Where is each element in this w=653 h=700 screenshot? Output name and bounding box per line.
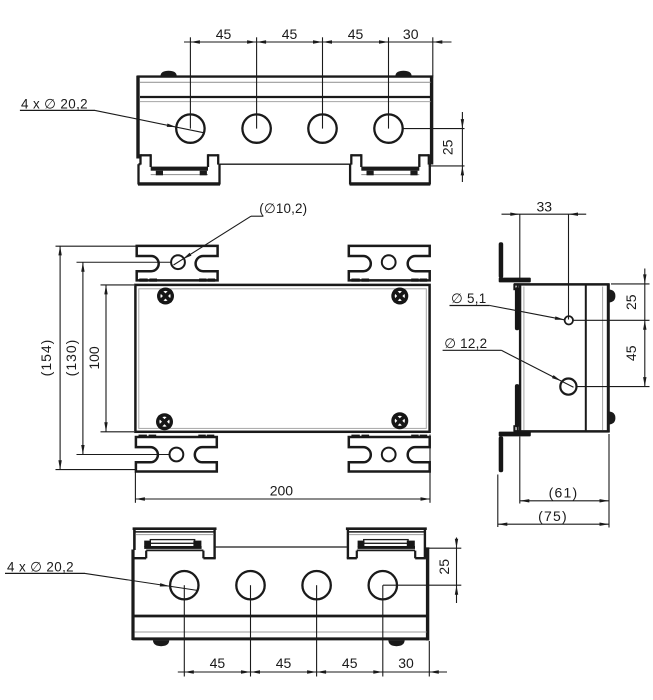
svg-text:45: 45: [282, 26, 298, 42]
svg-text:(75): (75): [538, 508, 568, 524]
svg-text:30: 30: [403, 26, 419, 42]
svg-text:45: 45: [216, 26, 232, 42]
svg-text:33: 33: [537, 199, 553, 215]
svg-text:200: 200: [270, 482, 294, 498]
svg-text:45: 45: [348, 26, 364, 42]
svg-text:45: 45: [276, 655, 292, 671]
svg-text:25: 25: [623, 294, 639, 310]
svg-text:30: 30: [398, 655, 414, 671]
svg-text:(154): (154): [38, 339, 54, 377]
svg-text:(∅10,2): (∅10,2): [259, 201, 307, 216]
svg-text:45: 45: [623, 345, 639, 361]
svg-text:∅ 5,1: ∅ 5,1: [451, 291, 487, 306]
svg-text:100: 100: [86, 346, 102, 370]
svg-text:∅ 12,2: ∅ 12,2: [444, 336, 487, 351]
svg-text:25: 25: [436, 559, 452, 575]
svg-text:4 x ∅ 20,2: 4 x ∅ 20,2: [21, 97, 88, 112]
svg-text:(130): (130): [63, 339, 79, 377]
svg-text:25: 25: [440, 139, 456, 155]
svg-text:45: 45: [210, 655, 226, 671]
svg-text:45: 45: [342, 655, 358, 671]
svg-text:(61): (61): [549, 485, 579, 501]
svg-text:4 x ∅ 20,2: 4 x ∅ 20,2: [7, 559, 74, 574]
